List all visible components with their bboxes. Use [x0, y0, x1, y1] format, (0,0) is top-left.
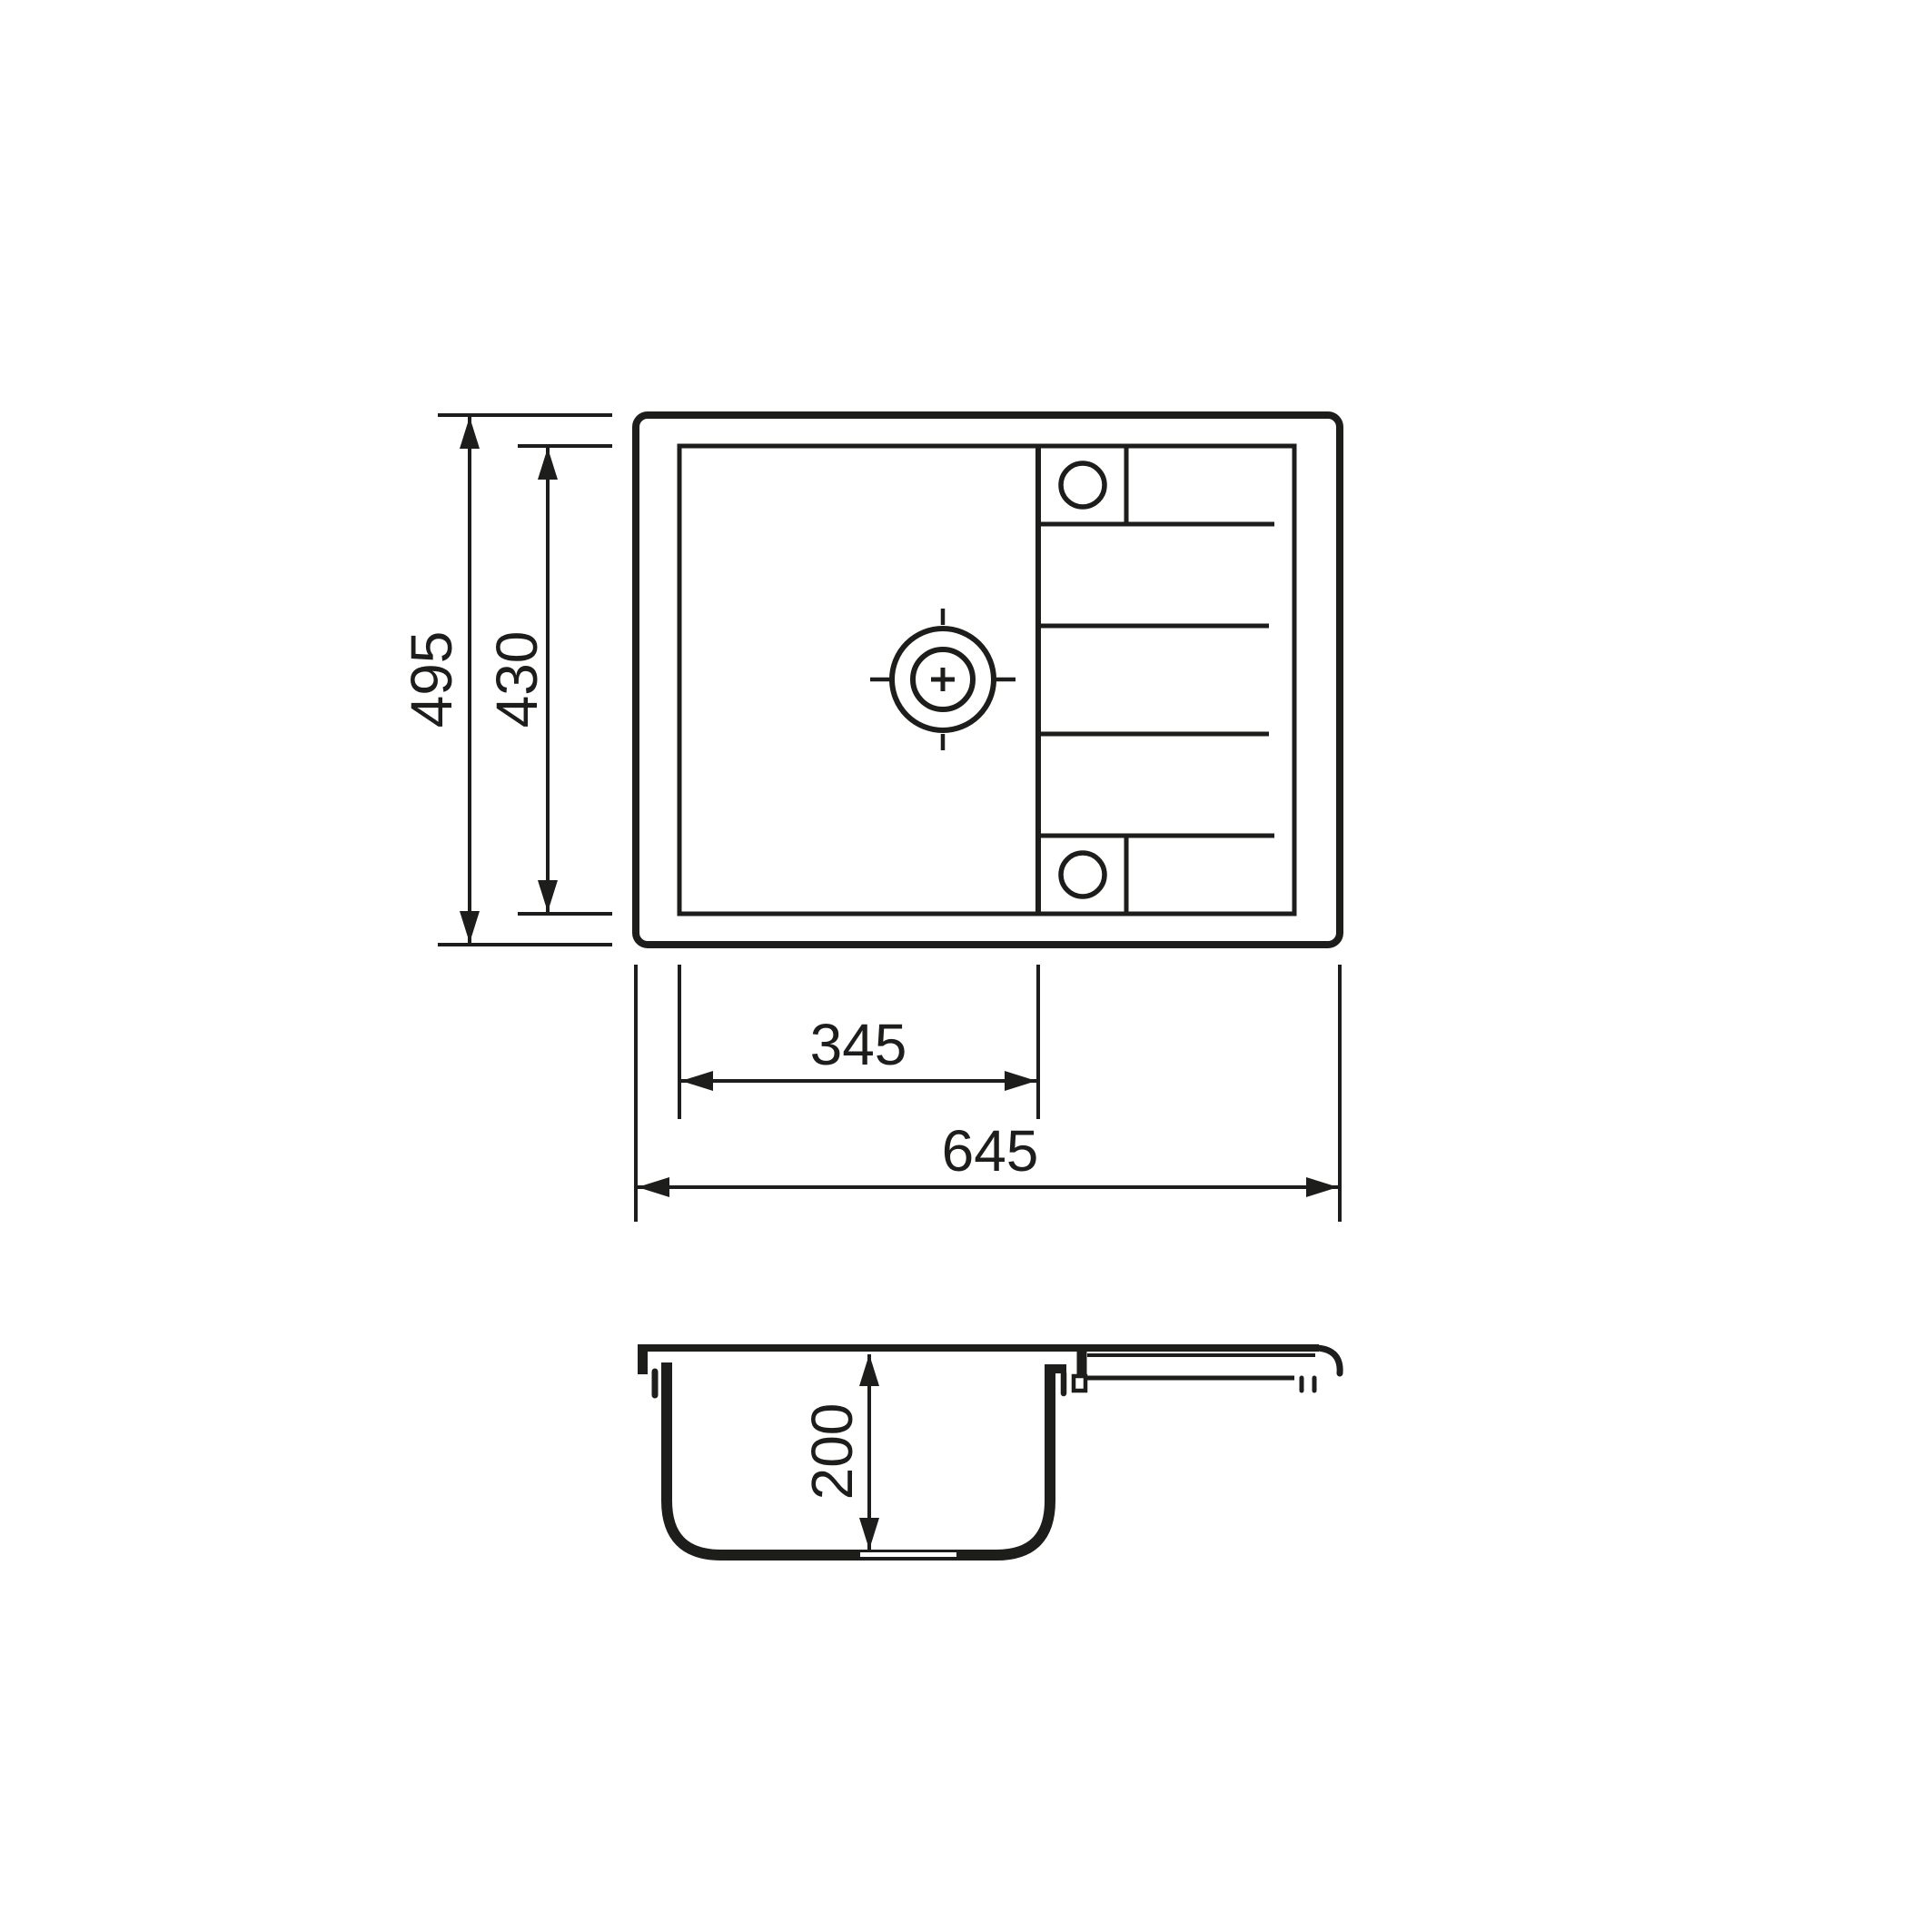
- drawing-canvas: 495 430 345 645: [0, 0, 1932, 1932]
- dim-label-bowl-width: 345: [810, 1012, 907, 1077]
- section-left-flange: [638, 1350, 648, 1374]
- sink-technical-drawing: 495 430 345 645: [0, 0, 1932, 1932]
- dim-label-overall-width: 645: [942, 1118, 1039, 1184]
- dim-label-bowl-height: 430: [484, 631, 550, 728]
- dim-label-bowl-depth: 200: [799, 1403, 865, 1501]
- section-drain-recess: [860, 1552, 956, 1557]
- dim-label-overall-height: 495: [399, 631, 464, 728]
- canvas-background: [0, 0, 1932, 1932]
